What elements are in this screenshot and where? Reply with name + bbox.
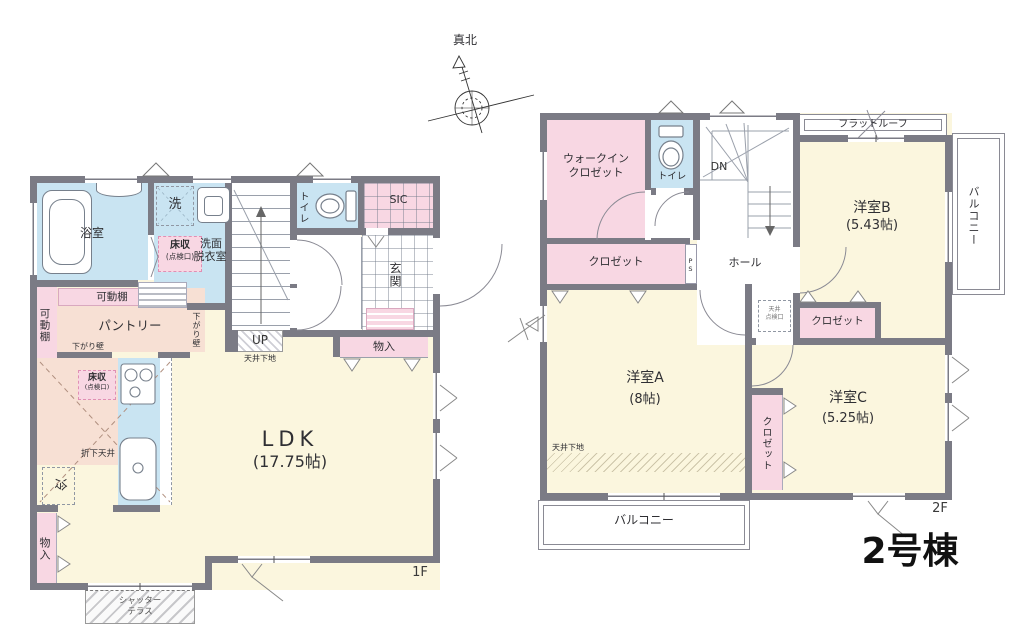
compass: [428, 56, 534, 133]
f2-floor-label: 2F: [925, 501, 955, 517]
f1-entrance-label: 玄関: [389, 252, 401, 298]
f2-room-b-door-gap: [793, 247, 800, 293]
f2-room-b-name: 洋室B: [812, 200, 932, 217]
f2-room-b-top-window: [848, 135, 904, 142]
f1-shower-counter: [96, 183, 142, 197]
f1-toilet-top-window: [313, 176, 351, 183]
compass-north-label: 真北: [445, 33, 485, 47]
f2-toilet-door-gap: [656, 188, 684, 195]
f1-ldk-right-window-1: [433, 373, 440, 419]
f2-room-c-bottom-window: [853, 493, 905, 500]
f1-ceiling-base-label: 天井下地: [233, 354, 287, 364]
f2-room-c-size: (5.25帖): [798, 411, 898, 427]
f1-toilet-label: トイレ: [297, 186, 307, 228]
f1-storage-kitchen-label: 物入: [39, 520, 50, 578]
f2-ceiling-hatch-label-1: 天井: [759, 306, 790, 313]
f1-washroom-top-window: [193, 176, 231, 183]
f1-hall-door-gap-2: [290, 288, 297, 328]
f2-room-c-door-gap: [756, 338, 793, 345]
f1-porch: [440, 230, 506, 330]
f1-sic-door-gap: [366, 228, 388, 235]
f2-stairs-top-window: [710, 113, 776, 120]
f2-wic-left-window: [540, 152, 547, 200]
f1-floor-storage-2-sub: (点検口): [79, 384, 115, 392]
f1-ldk-size: (17.75帖): [225, 452, 355, 471]
f2-room-a-name: 洋室A: [595, 370, 695, 387]
f2-balcony-bottom-label: バルコニー: [538, 513, 750, 527]
f2-ceiling-base-hatch: [547, 453, 745, 472]
f2-dn-label: DN: [700, 160, 738, 173]
f2-closet-c-label: クロゼット: [760, 400, 770, 486]
f1-ldk-bottom-window: [238, 556, 310, 563]
f1-terrace-label-2: テラス: [85, 607, 195, 617]
f1-terrace-door: [88, 583, 192, 590]
f1-ldk-right-window-2: [433, 433, 440, 479]
f1-bath-left-window: [30, 203, 37, 275]
f1-kitchen-counter: [118, 358, 160, 505]
building-name: 2号棟: [840, 530, 980, 573]
f2-room-c-right-window-2: [945, 403, 952, 441]
f2-wic-label-1: ウォークイン: [548, 152, 644, 165]
f2-closet-a-label: クロゼット: [547, 255, 685, 268]
f1-bath-label: 浴室: [62, 226, 122, 240]
f1-terrace-label-1: シャッター: [85, 596, 195, 606]
f2-balcony-right-label: バルコニー: [968, 166, 979, 266]
f2-toilet-label: トイレ: [651, 171, 693, 182]
f2-room-a-size: (8帖): [595, 392, 695, 408]
f1-bath-fold-door-gap: [148, 235, 154, 280]
f2-balcony-window: [608, 493, 720, 500]
f2-room-b-size: (5.43帖): [812, 218, 932, 234]
f1-washroom-label-1: 洗面: [190, 237, 232, 250]
f2-hall-label: ホール: [697, 256, 793, 269]
f1-hall-door-gap-1: [290, 240, 297, 284]
f2-ceiling-hatch-label-2: 点検口: [759, 314, 790, 321]
f1-floor-label: 1F: [405, 565, 435, 581]
f2-ps-label: PS: [687, 250, 694, 280]
f1-sic-label: SIC: [364, 193, 433, 206]
f2-room-c-right-window-1: [945, 355, 952, 393]
f1-washbasin-bowl: [204, 196, 223, 216]
f2-room-a-left-window: [540, 306, 547, 342]
f2-wic-label-2: クロゼット: [548, 166, 644, 179]
f2-room-c-name: 洋室C: [798, 390, 898, 407]
f2-wic-door-gap: [645, 190, 651, 240]
f1-fridge-label: 冷: [51, 471, 67, 499]
f1-storage-hall-label: 物入: [340, 340, 428, 353]
f1-stairs: [232, 183, 290, 330]
floorplan-canvas: 真北 2号棟 浴室 洗 床収 (点検口) 洗面 脱衣室 トイレ SIC 玄関 可…: [0, 0, 1024, 636]
f1-washer-label: 洗: [156, 197, 194, 213]
f1-pantry-label: パントリー: [75, 318, 185, 333]
f1-storage-hall-doorline: [340, 357, 428, 358]
f1-shelf-left-label: 可動棚: [39, 292, 50, 358]
f1-lowered-wall-h-label: 下がり壁: [62, 342, 114, 352]
f1-ldk-name: LDK: [230, 427, 350, 452]
f2-flat-roof-label: フラットルーフ: [799, 119, 947, 131]
f2-room-b-right-window: [945, 192, 952, 262]
f2-ceiling-base-label: 天井下地: [552, 443, 604, 453]
f1-entrance-door-gap: [433, 238, 440, 294]
f1-shelf-top-label: 可動棚: [60, 291, 164, 304]
f1-entrance-step: [366, 308, 414, 330]
f2-stairs: [700, 120, 793, 240]
f1-kitchen-open-counter: [160, 358, 172, 505]
f2-room-a-door-gap: [697, 284, 745, 290]
f1-entrance-frame-line: [361, 237, 362, 329]
f1-lowered-wall-v-label: 下がり壁: [192, 306, 200, 354]
f1-dropped-ceiling-label: 折下天井: [74, 449, 122, 459]
f1-washroom-label-2: 脱衣室: [186, 250, 234, 263]
f1-up-label: UP: [239, 333, 281, 347]
f1-bath-top-window: [85, 176, 137, 183]
f2-toilet-front: [651, 195, 693, 240]
f1-hallway: [297, 235, 361, 330]
f2-closet-b-label: クロゼット: [798, 315, 877, 328]
